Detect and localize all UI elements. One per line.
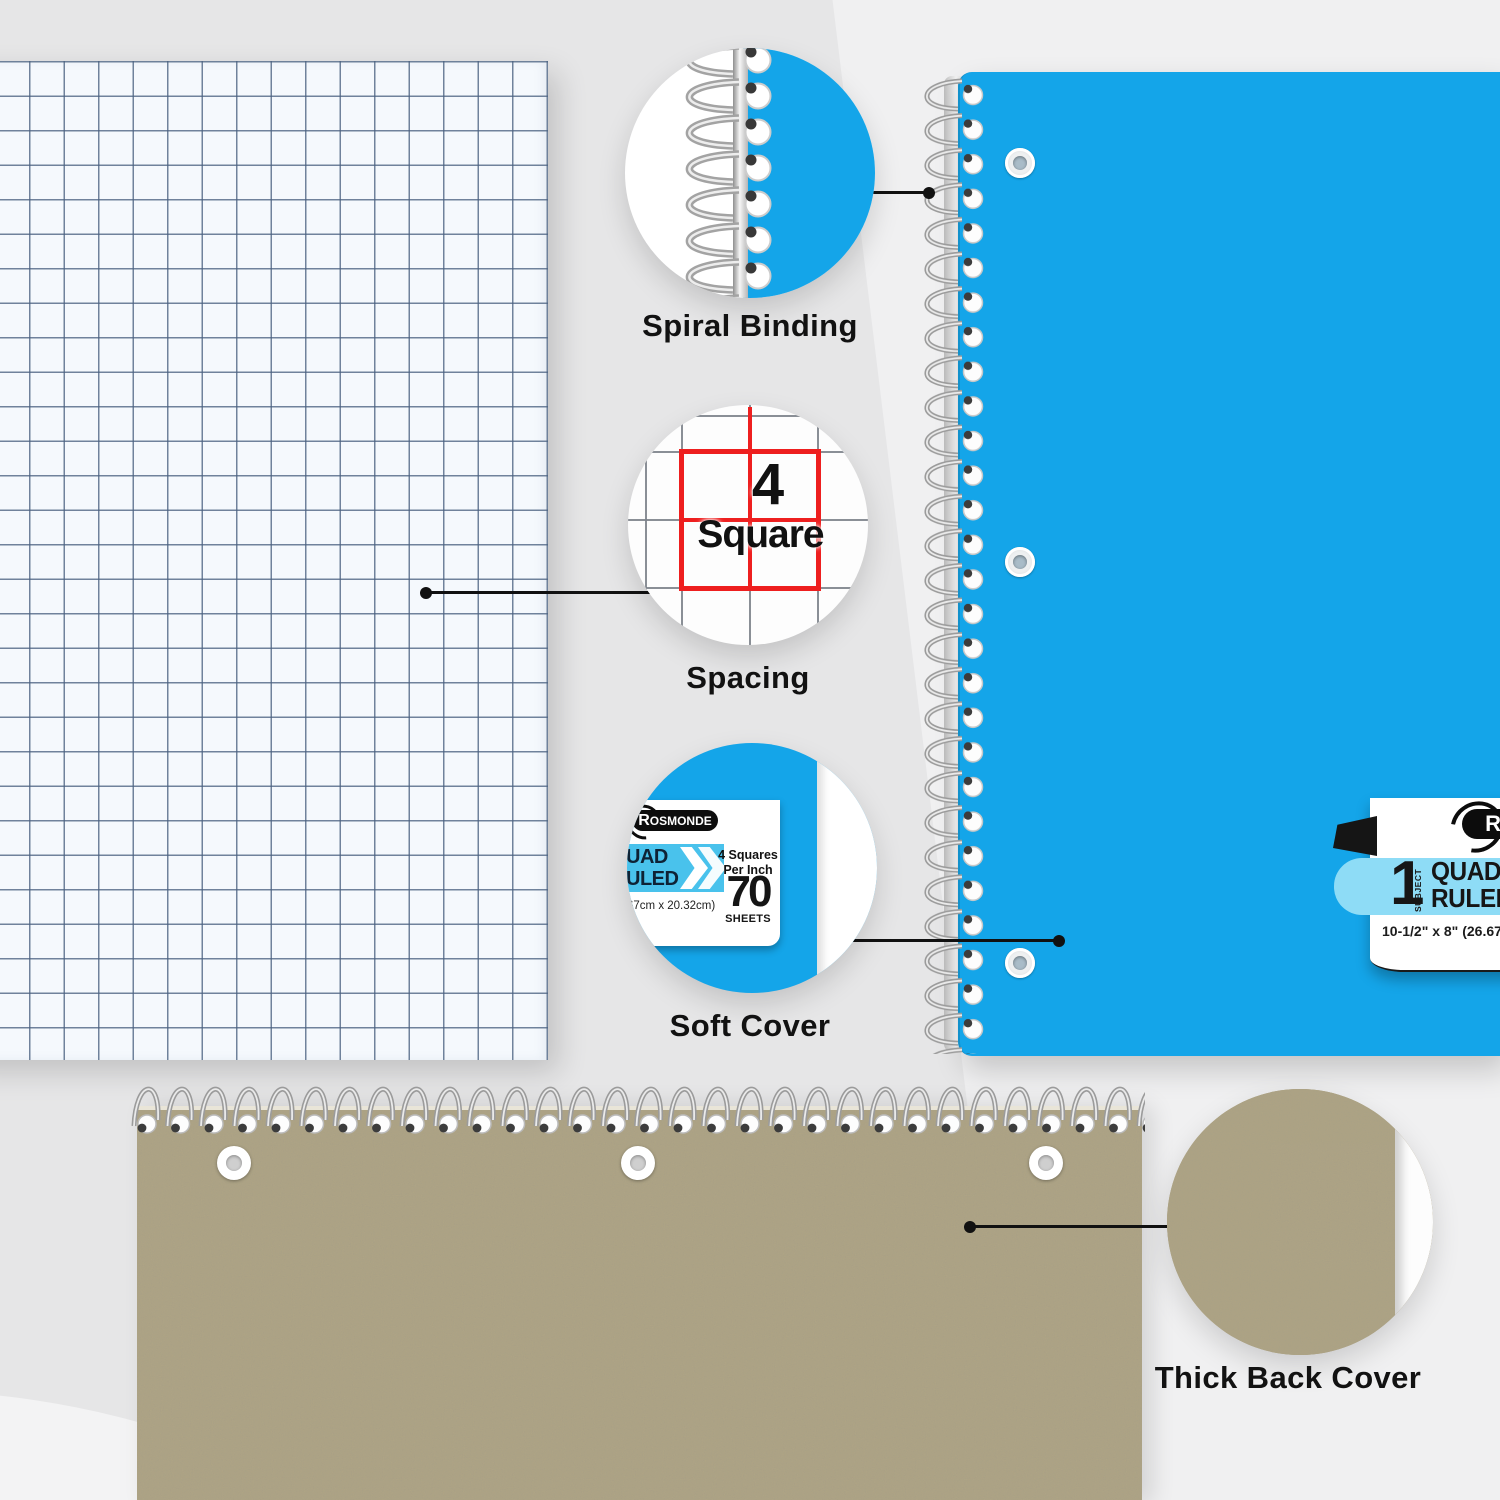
kraft-texture [1167, 1089, 1433, 1355]
punch-hole-center [1038, 1155, 1054, 1171]
cover-dimensions: 10-1/2" x 8" (26.67cm x 2 [1382, 923, 1500, 939]
callout-circle-thick-back-cover [1167, 1089, 1433, 1355]
grommet-hole-center [1013, 956, 1027, 970]
grommet-hole-center [1013, 555, 1027, 569]
callout-label-spacing: Spacing [598, 660, 898, 696]
callout-label-thick-back-cover: Thick Back Cover [1088, 1360, 1488, 1396]
quad-ruled-paper-sheet [0, 61, 548, 1060]
callout-circle-soft-cover: Rosmonde UAD ULED 4 Squares Per Inch 70 … [627, 743, 877, 993]
ruled-type: QUAD RULED [1431, 858, 1500, 912]
squares-per-inch-word: Square [668, 515, 853, 555]
connector-soft-cover [852, 939, 1060, 942]
back-cover-notebook [137, 1106, 1142, 1500]
mini-cover-label: Rosmonde UAD ULED 4 Squares Per Inch 70 … [627, 800, 780, 946]
grommet-hole [1005, 547, 1035, 577]
spiral-coil-vertical [898, 78, 990, 1054]
connector-spiral-binding [870, 191, 930, 194]
punch-hole-ring [621, 1146, 655, 1180]
grommet-hole [1005, 948, 1035, 978]
ruled-type-line2: RULED [1431, 885, 1500, 912]
page-edge-sliver [817, 743, 877, 993]
brand-logo: Rosmonde [632, 810, 718, 831]
page-edge-sliver [1395, 1089, 1433, 1355]
punch-hole-center [226, 1155, 242, 1171]
callout-circle-spacing: 4 Square [628, 405, 868, 645]
product-feature-image: Rosmonde 1 SUBJECT QUAD RULED 10-1/2" x … [0, 0, 1500, 1500]
callout-label-spiral-binding: Spiral Binding [600, 308, 900, 344]
squares-per-inch-number: 4 [723, 457, 813, 513]
squares-line1: 4 Squares [718, 848, 778, 863]
ruled-type-clipped: UAD ULED [627, 846, 678, 890]
sheet-count: 70 [718, 872, 778, 912]
grommet-hole-center [1013, 156, 1027, 170]
grommet-hole [1005, 148, 1035, 178]
connector-thick-back-cover [969, 1225, 1169, 1228]
ruled-type-line1: UAD [627, 846, 678, 868]
ruled-type-line1: QUAD [1431, 858, 1500, 885]
connector-dot [964, 1221, 976, 1233]
spiral-coil-closeup [655, 48, 795, 298]
punch-hole-ring [1029, 1146, 1063, 1180]
punch-hole-ring [217, 1146, 251, 1180]
ruled-type-line2: ULED [627, 868, 678, 890]
spiral-coil-horizontal [130, 1066, 1145, 1136]
callout-circle-spiral-binding [625, 48, 875, 298]
subject-word: SUBJECT [1413, 860, 1423, 912]
connector-dot [923, 187, 935, 199]
brand-logo: Rosmonde [1462, 809, 1500, 839]
dimensions-clipped: 67cm x 20.32cm) [627, 900, 715, 912]
sheet-count-word: SHEETS [718, 913, 778, 925]
connector-dot [420, 587, 432, 599]
callout-label-soft-cover: Soft Cover [600, 1008, 900, 1044]
punch-hole-center [630, 1155, 646, 1171]
connector-spacing [425, 591, 653, 594]
connector-dot [1053, 935, 1065, 947]
cover-label: Rosmonde 1 SUBJECT QUAD RULED 10-1/2" x … [1370, 798, 1500, 972]
